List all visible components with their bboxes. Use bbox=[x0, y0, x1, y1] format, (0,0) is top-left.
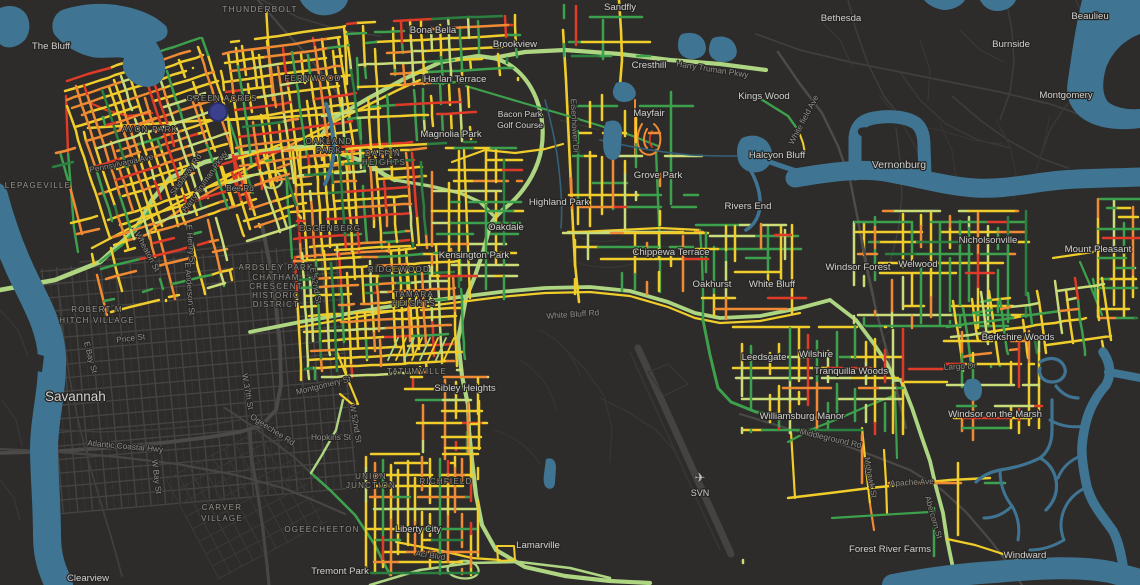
svg-text:GREEN ACRES: GREEN ACRES bbox=[187, 94, 258, 103]
svg-text:Windward: Windward bbox=[1004, 550, 1047, 561]
svg-text:CHATHAM: CHATHAM bbox=[252, 273, 299, 282]
svg-text:HEIGHTS: HEIGHTS bbox=[392, 299, 436, 308]
svg-text:TATUMVILLE: TATUMVILLE bbox=[387, 367, 447, 376]
svg-text:ARDSLEY PARK: ARDSLEY PARK bbox=[238, 263, 313, 272]
svg-text:Highland Park: Highland Park bbox=[529, 197, 589, 208]
svg-text:Nicholsonville: Nicholsonville bbox=[959, 235, 1018, 246]
svg-text:Leedsgate: Leedsgate bbox=[742, 352, 787, 363]
svg-text:Burnside: Burnside bbox=[992, 39, 1030, 50]
svg-text:✈: ✈ bbox=[695, 470, 706, 485]
svg-text:Beaulieu: Beaulieu bbox=[1071, 11, 1108, 22]
svg-text:Liberty City: Liberty City bbox=[395, 524, 441, 534]
svg-text:Bacon Park: Bacon Park bbox=[498, 109, 543, 119]
svg-text:CRESCENT: CRESCENT bbox=[249, 282, 303, 291]
svg-text:Bona Bella: Bona Bella bbox=[410, 25, 457, 36]
svg-text:UNION: UNION bbox=[355, 472, 387, 481]
svg-text:Hopkins St: Hopkins St bbox=[311, 432, 352, 442]
svg-text:Rivers End: Rivers End bbox=[725, 201, 772, 212]
svg-text:Sandfly: Sandfly bbox=[604, 2, 636, 13]
svg-text:RICHFIELD: RICHFIELD bbox=[419, 477, 472, 486]
svg-text:Wilshire: Wilshire bbox=[799, 349, 833, 360]
svg-text:THUNDERBOLT: THUNDERBOLT bbox=[222, 4, 297, 14]
svg-text:JUNCTION: JUNCTION bbox=[346, 481, 396, 490]
svg-text:EGGENBERG: EGGENBERG bbox=[299, 224, 361, 233]
svg-text:Berkshire Woods: Berkshire Woods bbox=[982, 332, 1055, 343]
svg-text:LEPAGEVILLE: LEPAGEVILLE bbox=[5, 181, 71, 190]
svg-text:Windsor Forest: Windsor Forest bbox=[825, 262, 890, 273]
svg-text:HISTORIC: HISTORIC bbox=[252, 291, 300, 300]
svg-text:SVN: SVN bbox=[691, 488, 710, 498]
svg-text:Kings Wood: Kings Wood bbox=[738, 91, 790, 102]
svg-text:ROBERT M: ROBERT M bbox=[71, 305, 123, 314]
svg-text:AVON PARK: AVON PARK bbox=[122, 125, 178, 134]
svg-text:Largo Dr: Largo Dr bbox=[943, 360, 976, 372]
svg-text:Tranquilla Woods: Tranquilla Woods bbox=[814, 366, 888, 377]
svg-text:PARK: PARK bbox=[316, 146, 342, 155]
svg-text:VILLAGE: VILLAGE bbox=[201, 514, 243, 523]
svg-text:Williamsburg Manor: Williamsburg Manor bbox=[760, 411, 846, 422]
svg-text:Oakdale: Oakdale bbox=[488, 222, 524, 233]
svg-text:Grove Park: Grove Park bbox=[634, 170, 683, 181]
svg-text:Welwood: Welwood bbox=[898, 259, 937, 270]
svg-text:Bethesda: Bethesda bbox=[821, 13, 862, 24]
svg-text:TAMARA: TAMARA bbox=[394, 290, 434, 299]
svg-text:Brookview: Brookview bbox=[493, 39, 537, 50]
svg-text:Mount Pleasant: Mount Pleasant bbox=[1065, 244, 1132, 255]
svg-text:Montgomery: Montgomery bbox=[1039, 90, 1093, 101]
svg-text:Windsor on the Marsh: Windsor on the Marsh bbox=[948, 409, 1042, 420]
svg-text:Cresthill: Cresthill bbox=[632, 60, 667, 71]
svg-text:Oakhurst: Oakhurst bbox=[693, 279, 732, 290]
svg-text:DAFFIN: DAFFIN bbox=[365, 149, 401, 158]
svg-text:Lamarville: Lamarville bbox=[516, 540, 560, 551]
svg-text:OGEECHEETON: OGEECHEETON bbox=[284, 525, 359, 534]
svg-text:Forest River Farms: Forest River Farms bbox=[849, 544, 931, 555]
svg-text:RIDGEWOOD: RIDGEWOOD bbox=[368, 265, 430, 274]
svg-text:Savannah: Savannah bbox=[45, 389, 106, 404]
svg-text:Mayfair: Mayfair bbox=[633, 108, 665, 119]
svg-text:Sibley Heights: Sibley Heights bbox=[434, 383, 496, 394]
svg-text:Harlan Terrace: Harlan Terrace bbox=[424, 74, 487, 85]
svg-text:Clearview: Clearview bbox=[67, 573, 109, 584]
svg-text:HITCH VILLAGE: HITCH VILLAGE bbox=[59, 316, 135, 325]
svg-text:White Bluff: White Bluff bbox=[749, 279, 796, 290]
svg-text:The Bluff: The Bluff bbox=[32, 41, 71, 52]
svg-text:Bee Rd: Bee Rd bbox=[226, 183, 254, 193]
svg-text:Halcyon Bluff: Halcyon Bluff bbox=[749, 150, 806, 161]
svg-text:FERNWOOD: FERNWOOD bbox=[284, 74, 341, 83]
svg-text:Tremont Park: Tremont Park bbox=[311, 566, 369, 577]
svg-text:Chippewa Terrace: Chippewa Terrace bbox=[632, 247, 709, 258]
svg-text:Vernonburg: Vernonburg bbox=[872, 159, 926, 171]
svg-text:CARVER: CARVER bbox=[202, 503, 242, 512]
svg-text:HEIGHTS: HEIGHTS bbox=[362, 158, 406, 167]
svg-text:Magnolia Park: Magnolia Park bbox=[420, 129, 482, 140]
svg-text:Kensington Park: Kensington Park bbox=[439, 250, 510, 261]
svg-text:Golf Course: Golf Course bbox=[497, 120, 543, 130]
svg-text:DISTRICT: DISTRICT bbox=[253, 300, 300, 309]
svg-text:OAKLAND: OAKLAND bbox=[306, 137, 353, 146]
